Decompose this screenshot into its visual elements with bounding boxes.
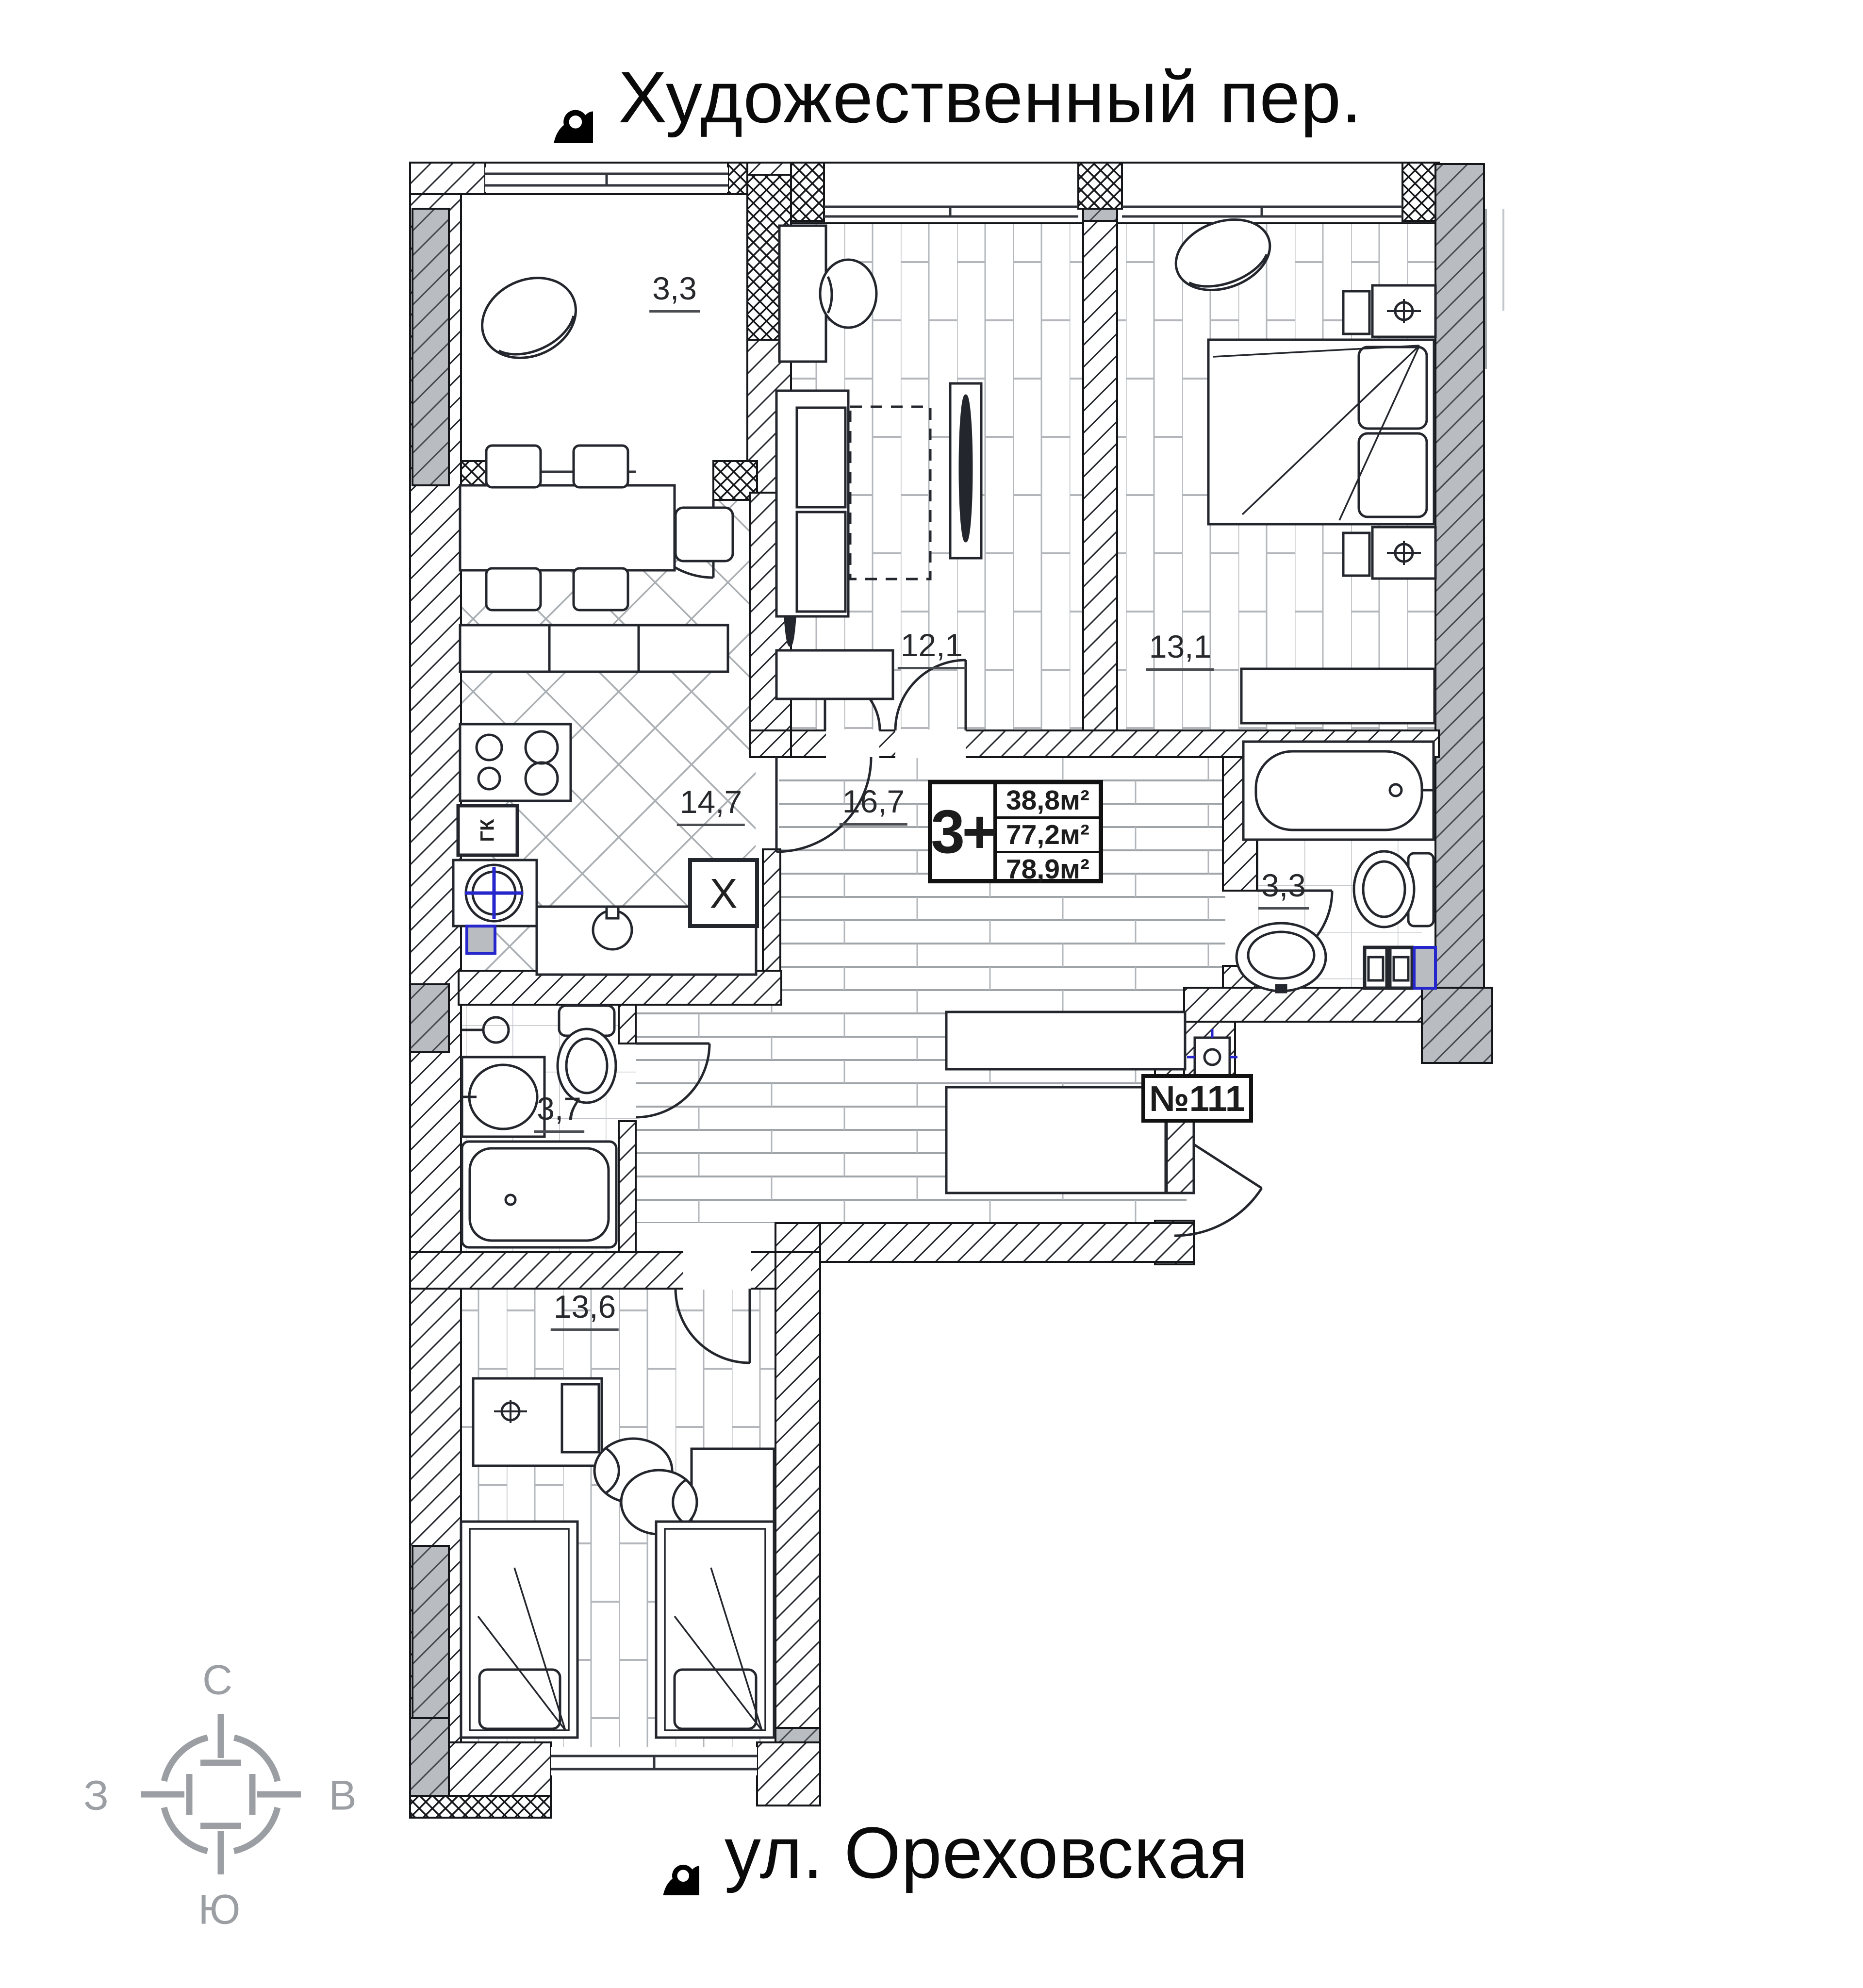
washing-machine	[1365, 947, 1435, 988]
cabinet-bedroom-1	[776, 650, 893, 699]
wall-corner-bottom-left	[410, 1718, 449, 1800]
chair	[486, 446, 541, 487]
washbasin-bathroom	[1237, 923, 1326, 992]
street-label-top: Художественный пер.	[0, 51, 1863, 143]
room-label-bedroom-1: 12,1	[898, 627, 966, 669]
apartment-number-badge: №111	[1141, 1074, 1253, 1123]
wall-wing-right	[775, 1252, 820, 1806]
door-gap-bedroom-2	[895, 729, 966, 758]
wall-right-exterior	[1435, 164, 1484, 1022]
chair	[574, 568, 628, 610]
stove	[460, 724, 571, 801]
hall-wardrobe-2	[946, 1087, 1166, 1193]
toilet-bathroom	[1354, 851, 1434, 927]
wall-bedroom3-bottom-right	[757, 1742, 820, 1806]
room-label-balcony-top: 3,3	[649, 270, 700, 313]
floor-plan-page: Художественный пер. ул. Ореховская 3,3 1…	[0, 0, 1863, 1988]
dining-table	[460, 485, 675, 570]
desk-chair	[820, 260, 876, 328]
wall-bedroom1-bedroom2	[1083, 221, 1117, 730]
washbasin-wc	[462, 1057, 544, 1137]
kitchen-cabinets	[460, 625, 728, 672]
floor-plan-drawing	[0, 0, 1863, 1988]
street-label-bottom: ул. Ореховская	[0, 1810, 1863, 1895]
desk-left	[473, 1378, 602, 1466]
binoculars-icon	[501, 51, 593, 143]
room-label-bedroom-2: 13,1	[1146, 628, 1214, 671]
window-left-balcony	[412, 209, 449, 485]
compass-north-label: С	[202, 1657, 232, 1705]
wall-stub-kitchen-hall	[763, 849, 780, 975]
bathtub	[1243, 742, 1434, 840]
door-gap-bedroom-3	[683, 1251, 751, 1290]
faucet	[607, 907, 618, 918]
chair	[574, 446, 628, 487]
area-living: 38,8м²	[997, 784, 1099, 819]
door-gap-bedroom-1	[826, 729, 879, 758]
double-bed	[1208, 340, 1434, 524]
compass-west-label: З	[83, 1772, 109, 1820]
binoculars-icon	[614, 1810, 699, 1895]
nightstand	[1343, 285, 1435, 337]
window-left-bedroom-3	[412, 1546, 449, 1723]
dresser	[1241, 669, 1434, 723]
wall-bedroom3-bottom-left	[449, 1742, 551, 1798]
single-bed-left	[461, 1522, 577, 1738]
wall-corridor-bottom	[790, 1223, 1194, 1262]
compass-east-label: В	[329, 1772, 356, 1820]
tv-console	[950, 383, 981, 558]
apartment-info-box: 3+ 38,8м² 77,2м² 78,9м²	[928, 780, 1103, 883]
nightstand	[1343, 527, 1435, 579]
chair	[676, 508, 733, 561]
wall-toilet-right	[619, 1005, 636, 1044]
street-name-top: Художественный пер.	[618, 55, 1362, 139]
shower-tray	[462, 1142, 616, 1247]
street-name-bottom: ул. Ореховская	[725, 1811, 1249, 1895]
vent-label: X	[709, 870, 737, 918]
area-main: 77,2м²	[997, 819, 1099, 853]
toilet-wc	[558, 1006, 616, 1103]
compass-south-label: Ю	[198, 1886, 241, 1934]
room-label-bathroom: 3,3	[1258, 867, 1309, 910]
room-label-bedroom-3: 13,6	[551, 1288, 619, 1331]
kitchen-sink	[453, 860, 537, 926]
gas-boiler-label: ГК	[477, 819, 499, 842]
window-balcony-top	[485, 167, 728, 192]
chair	[486, 568, 541, 610]
room-label-hallway: 16,7	[840, 783, 907, 826]
apartment-type: 3+	[932, 784, 997, 879]
plumbing-riser	[467, 926, 495, 953]
single-bed-right	[656, 1522, 774, 1738]
hall-wardrobe-1	[946, 1012, 1185, 1069]
window-bedroom-3-bottom	[551, 1747, 757, 1775]
window-left-toilet	[410, 984, 449, 1052]
room-label-toilet: 3,7	[534, 1090, 584, 1133]
room-label-kitchen-living: 14,7	[677, 783, 745, 826]
sofa	[776, 391, 848, 616]
area-total: 78,9м²	[997, 853, 1099, 885]
